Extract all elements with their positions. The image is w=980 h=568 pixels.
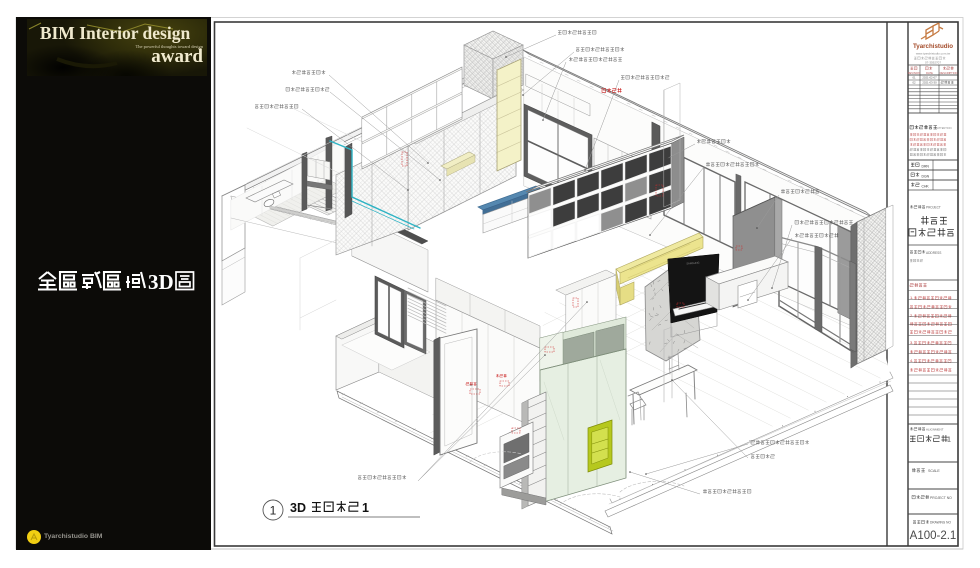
svg-text:PROJECT NO: PROJECT NO [930, 496, 952, 500]
svg-text:1: 1 [270, 504, 277, 518]
svg-text:01: 01 [912, 76, 916, 80]
svg-text:www.tyarchistudio.com.tw: www.tyarchistudio.com.tw [916, 52, 951, 56]
svg-text:02: 02 [912, 81, 916, 85]
svg-text:2021-02-07: 2021-02-07 [922, 76, 937, 80]
svg-text:07-3592707: 07-3592707 [925, 61, 941, 65]
svg-text:2021-03-30: 2021-03-30 [922, 81, 937, 85]
svg-text:ALIGNMENT: ALIGNMENT [926, 428, 944, 432]
svg-text:PROJECT: PROJECT [926, 206, 941, 210]
svg-text:ADDRESS: ADDRESS [926, 251, 941, 255]
svg-text:CHK: CHK [922, 185, 930, 189]
svg-text:ATTENTION: ATTENTION [937, 126, 952, 130]
svg-text:DRN: DRN [922, 165, 930, 169]
svg-text:2.: 2. [910, 313, 913, 318]
svg-text:DGN: DGN [922, 175, 930, 179]
svg-text:DESCRIPTION: DESCRIPTION [940, 71, 958, 75]
svg-text:1: 1 [947, 437, 951, 444]
svg-text:Tyarchistudio: Tyarchistudio [913, 43, 953, 50]
svg-text:DRAWING NO: DRAWING NO [930, 521, 951, 525]
svg-text:A100-2.1: A100-2.1 [910, 530, 957, 542]
svg-text:1: 1 [362, 501, 369, 515]
svg-text:SCALE: SCALE [928, 469, 940, 473]
svg-text:DATE: DATE [926, 71, 933, 75]
svg-text:3D: 3D [290, 501, 306, 515]
svg-text:3D: 3D [148, 270, 174, 294]
svg-text:REVISION: REVISION [908, 71, 921, 75]
